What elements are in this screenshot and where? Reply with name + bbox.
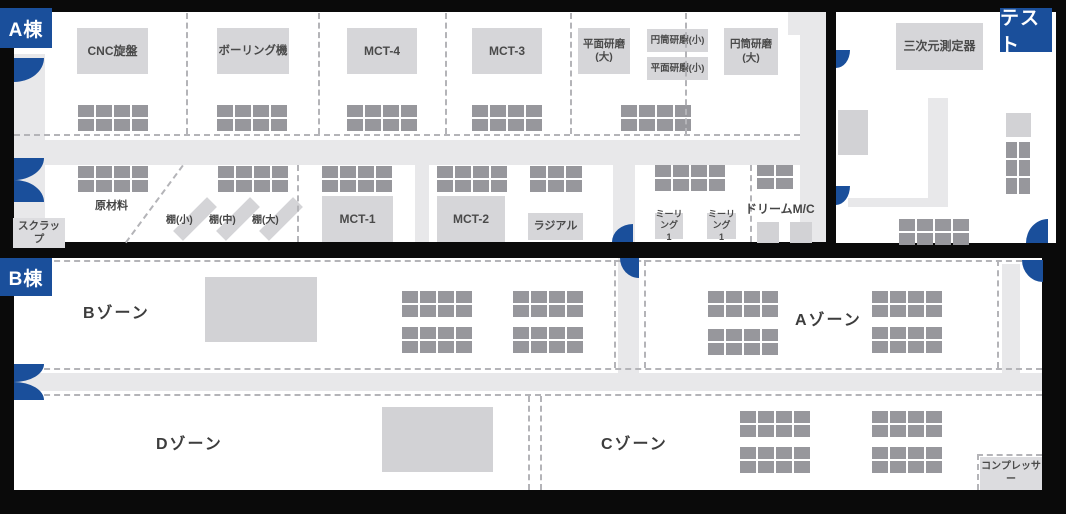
pallet-cell [926,305,942,317]
pallet-cell [621,105,637,117]
pallet-cell [438,305,454,317]
divider-dc-1 [528,396,530,490]
machine-cnc-lathe: CNC旋盤 [77,28,148,74]
pallet-cell [217,119,233,131]
pallet-cell [513,327,529,339]
pallet-cell [530,166,546,178]
pallet-cell [1019,178,1030,194]
pallet-cell [899,233,915,245]
label-zone-d: Dゾーン [156,430,223,454]
pallet-cell [78,119,94,131]
walkway-b-main [14,373,1042,391]
pallet-cell [376,166,392,178]
pallet-cell [438,291,454,303]
divider-shelf-east [297,165,299,242]
pallet-cell [926,461,942,473]
pallet-cell [513,291,529,303]
pallet-cell [253,119,269,131]
pallet-cell [744,305,760,317]
divider-a-2 [318,13,320,134]
pallet-cell [709,165,725,177]
pallets-czone-2 [740,447,810,473]
pallet-cell [740,411,756,423]
pallets-czone-3 [872,411,942,437]
pallet-cell [908,291,924,303]
pallets-mct1 [322,166,392,192]
machine-surface-grinder-large: 平面研磨 (大) [578,28,630,74]
machine-cylindrical-grinder-small: 円筒研磨(小) [647,29,708,52]
pallet-cell [1019,160,1030,176]
pallet-cell [114,180,130,192]
pallet-cell [114,119,130,131]
pallet-cell [513,341,529,353]
machine-mct-2: MCT-2 [437,196,505,242]
machine-radial: ラジアル [528,213,583,240]
pallet-cell [365,119,381,131]
test-room-tag: テスト [1000,8,1052,52]
pallet-cell [776,461,792,473]
pallets-mct4 [347,105,417,131]
pallet-cell [776,425,792,437]
pallet-cell [709,179,725,191]
divider-bzone-east [614,260,616,368]
walkway-a-mid-1 [415,165,429,242]
pallets-cnc [78,105,148,131]
pallet-cell [926,411,942,423]
pallet-cell [437,166,453,178]
pallets-dream-mc [757,165,793,189]
pallet-cell [358,166,374,178]
pallet-cell [890,411,906,423]
pallet-cell [926,425,942,437]
pallet-cell [566,166,582,178]
divider-a-4 [570,13,572,134]
pallet-cell [549,341,565,353]
pallet-cell [872,411,888,423]
pallet-cell [358,180,374,192]
dream-mc-unit-1 [757,222,779,243]
pallet-cell [236,180,252,192]
pallet-cell [254,166,270,178]
pallet-cell [953,219,969,231]
pallets-bzone-1 [402,291,472,317]
pallet-cell [762,329,778,341]
pallet-cell [549,327,565,339]
divider-azone-west [644,260,646,368]
pallet-cell [490,119,506,131]
pallet-cell [794,425,810,437]
pallet-cell [365,105,381,117]
pallet-cell [1006,160,1017,176]
walkway-test-horizontal [848,198,928,207]
pallet-cell [639,105,655,117]
machine-mct-4: MCT-4 [347,28,417,74]
pallet-cell [757,178,774,189]
pallets-bzone-2 [402,327,472,353]
pallet-cell [322,180,338,192]
pallet-cell [708,291,724,303]
factory-floor-plan: A棟 テスト B棟 CNC旋盤ボーリング機MCT-4MCT-3平面研磨 (大)円… [0,0,1066,514]
machine-mct-1: MCT-1 [322,196,393,242]
pallet-cell [762,343,778,355]
pallet-cell [236,166,252,178]
machine-cmm: 三次元測定器 [896,23,983,70]
pallets-grinders [621,105,691,131]
pallet-cell [526,119,542,131]
label-zone-c: Cゾーン [601,430,668,454]
pallet-cell [935,219,951,231]
pallet-cell [456,327,472,339]
pallet-cell [776,411,792,423]
pallet-cell [926,327,942,339]
pallet-cell [794,411,810,423]
machine-milling-1a: ミーリング 1 [655,213,683,239]
pallet-cell [740,461,756,473]
pallet-cell [491,180,507,192]
pallet-cell [402,291,418,303]
pallet-cell [1006,142,1017,158]
pallets-raw-materials [78,166,148,192]
divider-b-north [14,260,1042,262]
pallet-cell [455,180,471,192]
label-zone-b: Bゾーン [83,299,150,323]
pallet-cell [473,180,489,192]
divider-b-walkway-north [14,368,1042,370]
pallet-cell [744,343,760,355]
pallet-cell [78,105,94,117]
pallet-cell [776,447,792,459]
pallet-cell [530,180,546,192]
walkway-a-main [14,140,826,165]
pallet-cell [691,165,707,177]
pallet-cell [455,166,471,178]
pallet-cell [908,425,924,437]
pallet-cell [271,105,287,117]
pallet-cell [890,305,906,317]
pallet-cell [402,327,418,339]
label-dream-mc: ドリームM/C [745,200,815,217]
pallet-cell [917,219,933,231]
pallet-cell [420,341,436,353]
pallet-cell [794,447,810,459]
pallet-cell [872,425,888,437]
pallet-cell [132,166,148,178]
divider-compressor-v [977,454,979,490]
pallet-cell [132,119,148,131]
pallet-cell [908,305,924,317]
pallet-cell [420,327,436,339]
pallet-cell [548,166,564,178]
pallet-cell [271,119,287,131]
walkway-b-east [1002,264,1020,374]
pallet-cell [740,447,756,459]
pallet-cell [347,119,363,131]
pallet-cell [655,179,671,191]
pallet-cell [383,119,399,131]
walkway-test-vertical [928,98,948,207]
pallet-cell [757,165,774,176]
divider-a-5 [685,13,687,134]
pallet-cell [872,341,888,353]
pallet-cell [96,166,112,178]
pallet-cell [272,166,288,178]
pallet-cell [456,291,472,303]
pallet-cell [456,305,472,317]
pallet-cell [726,305,742,317]
pallet-cell [235,119,251,131]
bzone-equipment-block [205,277,317,342]
pallet-cell [908,341,924,353]
pallet-cell [401,119,417,131]
pallet-cell [114,166,130,178]
pallet-cell [657,105,673,117]
area-compressor: コンプレッサー [980,457,1042,490]
pallet-cell [890,291,906,303]
pallet-cell [744,291,760,303]
pallet-cell [437,180,453,192]
pallet-cell [566,180,582,192]
label-shelf-medium: 棚(中) [209,211,236,226]
pallet-cell [96,105,112,117]
pallets-azone-3 [872,291,942,317]
pallet-cell [926,447,942,459]
label-zone-a: Aゾーン [795,306,862,330]
pallet-cell [926,291,942,303]
machine-mct-3: MCT-3 [472,28,542,74]
pallet-cell [567,291,583,303]
pallet-cell [890,327,906,339]
pallets-azone-2 [708,329,778,355]
pallet-cell [218,166,234,178]
pallets-czone-1 [740,411,810,437]
pallet-cell [402,341,418,353]
pallet-cell [675,119,691,131]
pallet-cell [549,305,565,317]
pallet-cell [1019,142,1030,158]
pallets-test-east [1006,142,1030,194]
pallet-cell [917,233,933,245]
pallet-cell [383,105,399,117]
pallets-czone-4 [872,447,942,473]
pallet-cell [402,305,418,317]
pallet-cell [673,165,689,177]
pallet-cell [254,180,270,192]
dzone-equipment-block [382,407,493,472]
pallet-cell [78,180,94,192]
dream-mc-unit-2 [790,222,812,243]
pallet-cell [548,180,564,192]
pallet-cell [456,341,472,353]
pallet-cell [890,425,906,437]
pallet-cell [708,329,724,341]
machine-cylindrical-grinder-large: 円筒研磨 (大) [724,28,778,75]
pallet-cell [890,461,906,473]
label-raw-materials: 原材料 [95,197,128,213]
pallet-cell [526,105,542,117]
pallet-cell [438,327,454,339]
pallets-milling [655,165,725,191]
pallet-cell [673,179,689,191]
pallets-mct2 [437,166,507,192]
pallet-cell [340,166,356,178]
pallets-test-south [899,219,969,245]
pallet-cell [567,305,583,317]
pallet-cell [490,105,506,117]
pallet-cell [794,461,810,473]
pallet-cell [726,329,742,341]
pallets-azone-1 [708,291,778,317]
pallet-cell [1006,178,1017,194]
pallet-cell [473,166,489,178]
pallet-cell [762,305,778,317]
pallet-cell [218,180,234,192]
pallets-bzone-4 [513,327,583,353]
pallet-cell [531,305,547,317]
pallet-cell [657,119,673,131]
machine-milling-1b: ミーリング 1 [707,213,736,239]
pallet-cell [401,105,417,117]
area-scrap: スクラップ [13,218,65,248]
pallets-radial [530,166,582,192]
pallet-cell [872,327,888,339]
pallet-cell [899,219,915,231]
building-a-tag: A棟 [0,8,52,48]
pallet-cell [908,461,924,473]
divider-dc-2 [540,396,542,490]
pallet-cell [655,165,671,177]
pallet-cell [272,180,288,192]
pallet-cell [472,105,488,117]
pallet-cell [491,166,507,178]
pallet-cell [890,447,906,459]
test-east-equipment-block [1006,113,1031,137]
pallet-cell [217,105,233,117]
pallet-cell [740,425,756,437]
divider-a-top-row [14,134,800,136]
pallet-cell [114,105,130,117]
pallet-cell [872,461,888,473]
pallet-cell [762,291,778,303]
pallet-cell [508,105,524,117]
pallets-boring [217,105,287,131]
pallet-cell [132,180,148,192]
pallet-cell [96,119,112,131]
pallet-cell [549,291,565,303]
pallet-cell [691,179,707,191]
test-west-equipment-block [838,110,868,155]
pallet-cell [132,105,148,117]
pallet-cell [872,447,888,459]
pallet-cell [513,305,529,317]
pallet-cell [567,327,583,339]
pallet-cell [872,305,888,317]
pallet-cell [726,291,742,303]
divider-compressor-h [977,454,1042,456]
building-b-tag: B棟 [0,258,52,296]
label-shelf-small: 棚(小) [166,211,193,226]
pallet-cell [472,119,488,131]
pallet-cell [726,343,742,355]
pallet-cell [908,411,924,423]
pallet-cell [890,341,906,353]
pallet-cell [567,341,583,353]
pallet-cell [621,119,637,131]
pallet-cell [926,341,942,353]
pallet-cell [708,343,724,355]
label-shelf-large: 棚(大) [252,211,279,226]
pallet-cell [908,447,924,459]
divider-azone-east [997,260,999,368]
pallet-cell [322,166,338,178]
pallet-cell [872,291,888,303]
pallet-cell [96,180,112,192]
pallet-cell [420,305,436,317]
machine-surface-grinder-small: 平面研磨(小) [647,57,708,80]
pallet-cell [908,327,924,339]
pallets-azone-4 [872,327,942,353]
divider-a-3 [445,13,447,134]
pallet-cell [708,305,724,317]
pallet-cell [744,329,760,341]
pallet-cell [438,341,454,353]
pallet-cell [776,178,793,189]
pallet-cell [953,233,969,245]
machine-boring: ボーリング機 [217,28,289,74]
pallet-cell [758,447,774,459]
pallet-cell [376,180,392,192]
pallet-cell [347,105,363,117]
pallet-cell [235,105,251,117]
pallet-cell [758,411,774,423]
pallet-cell [531,341,547,353]
pallets-bzone-3 [513,291,583,317]
pallet-cell [253,105,269,117]
pallet-cell [78,166,94,178]
pallet-cell [758,425,774,437]
pallet-cell [508,119,524,131]
pallet-cell [935,233,951,245]
pallet-cell [340,180,356,192]
pallet-cell [758,461,774,473]
pallet-cell [675,105,691,117]
pallet-cell [776,165,793,176]
pallet-cell [639,119,655,131]
pallet-cell [531,327,547,339]
pallet-cell [420,291,436,303]
pallet-cell [531,291,547,303]
pallets-shelf-area [218,166,288,192]
pallets-mct3 [472,105,542,131]
divider-a-1 [186,13,188,134]
